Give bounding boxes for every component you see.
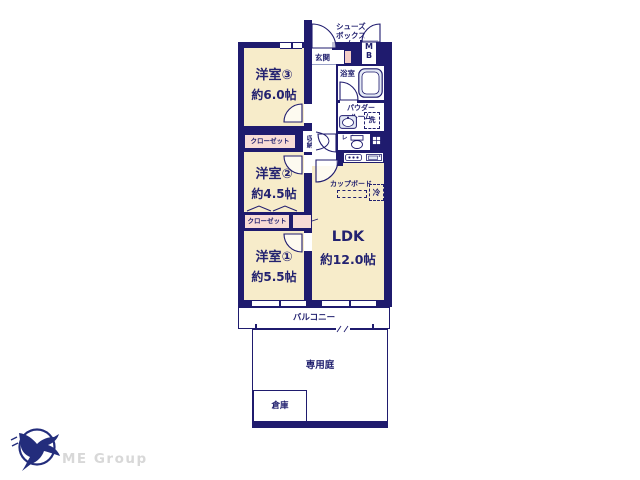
room-1-size: 約5.5帖 xyxy=(244,268,304,285)
window-tick xyxy=(279,301,281,306)
toilet-icon xyxy=(349,135,365,149)
bathroom-label: 浴室 xyxy=(340,69,355,78)
room-3-size: 約6.0帖 xyxy=(244,86,304,103)
shed-label: 倉庫 xyxy=(271,401,288,412)
ldk-size: 約12.0帖 xyxy=(312,249,384,268)
window xyxy=(280,42,302,49)
bathtub-icon xyxy=(358,68,383,98)
window-tick xyxy=(291,43,293,48)
balcony: バルコニー xyxy=(238,307,390,329)
meter-box-label: M B xyxy=(362,43,376,61)
cupboard-space xyxy=(337,190,367,198)
kitchen-sink-icon xyxy=(366,154,382,161)
entrance-left-wall xyxy=(304,20,312,50)
corridor xyxy=(312,50,336,166)
room1-door-opening xyxy=(304,233,312,251)
refrigerator-space: 冷 xyxy=(369,184,384,201)
room-3-label: 洋室③ 約6.0帖 xyxy=(244,64,304,103)
floorplan-page: 洋室③ 約6.0帖 クローゼット 収納 洋室② 約4.5帖 クローゼット クロー… xyxy=(0,0,640,480)
room2-door-opening xyxy=(304,155,312,173)
closet-room3-label: クローゼット xyxy=(251,137,290,145)
stove-icon xyxy=(345,154,362,161)
garden-bottom-wall xyxy=(252,422,388,428)
shoes-box xyxy=(344,50,352,64)
entrance-step-line xyxy=(312,64,336,65)
bifold-door-icon xyxy=(246,205,298,212)
room-3-name: 洋室③ xyxy=(244,64,304,83)
room3-door-opening xyxy=(304,104,312,123)
garden-gate-icon xyxy=(335,325,351,333)
shoes-box-label: シューズ ボックス xyxy=(336,22,366,41)
ldk-name: LDK xyxy=(312,229,384,245)
entrance-opening xyxy=(312,42,332,50)
meter-box: M B xyxy=(360,40,378,66)
sink-icon xyxy=(339,115,357,129)
bifold-door-icon xyxy=(247,126,303,133)
swallow-logo-icon xyxy=(9,421,61,473)
bathroom-door-opening xyxy=(340,100,357,103)
laundry-label: 洗 xyxy=(369,116,376,125)
room-2-name: 洋室② xyxy=(244,163,304,182)
logo-company-name: ME Group xyxy=(62,451,148,467)
laundry-space: 洗 xyxy=(364,112,380,129)
cupboard-label: カップボード xyxy=(330,180,372,189)
vent-icon xyxy=(372,136,381,145)
private-garden-label: 専用庭 xyxy=(252,360,388,372)
room-1-name: 洋室① xyxy=(244,246,304,265)
shed: 倉庫 xyxy=(253,390,307,422)
closet-room2-label: クローゼット xyxy=(248,217,287,225)
window-tick xyxy=(349,301,351,306)
closet-room2: クローゼット xyxy=(244,214,290,229)
closet-room3: クローゼット xyxy=(244,134,296,149)
room-1-label: 洋室① 約5.5帖 xyxy=(244,246,304,285)
window xyxy=(322,300,376,307)
entrance-label: 玄関 xyxy=(315,53,330,62)
window xyxy=(252,300,306,307)
refrigerator-label: 冷 xyxy=(373,188,381,197)
counter-side-wall xyxy=(336,150,343,166)
room-2-size: 約4.5帖 xyxy=(244,185,304,202)
balcony-label: バルコニー xyxy=(293,313,335,324)
closet-room1 xyxy=(292,214,312,229)
room-2-label: 洋室② 約4.5帖 xyxy=(244,163,304,202)
ldk-label: LDK 約12.0帖 xyxy=(312,229,384,268)
